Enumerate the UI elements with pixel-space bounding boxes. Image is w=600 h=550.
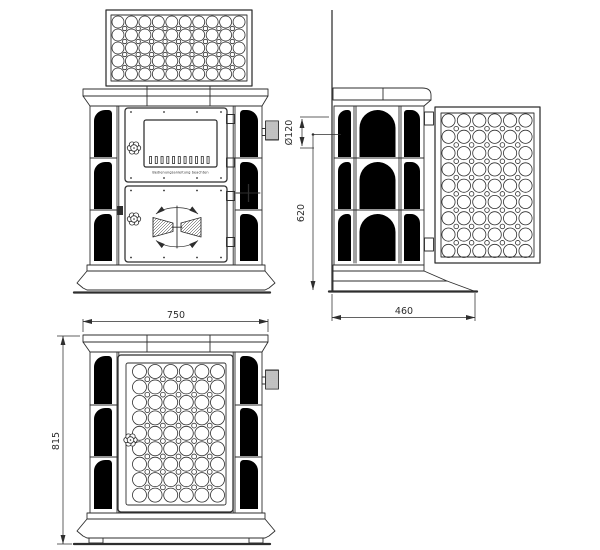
door-latch — [118, 206, 124, 215]
stove-technical-drawing-page: Bedienungsanleitung beachten — [0, 0, 600, 550]
top-cornice — [83, 86, 268, 106]
plinth-base-b — [74, 513, 275, 544]
dim-flue-diameter-label: Ø120 — [284, 120, 295, 146]
door-notice-text: Bedienungsanleitung beachten — [152, 171, 208, 175]
flue-diameter-dimension: Ø120 — [284, 117, 329, 148]
grate-hinge-top — [425, 112, 434, 125]
top-grate-panel — [106, 10, 252, 86]
side-view-tile-arches — [338, 110, 420, 261]
side-cornice — [333, 88, 431, 106]
stove-three-view-drawing: Bedienungsanleitung beachten — [0, 0, 600, 550]
front-view-dimensioned — [74, 335, 279, 544]
plinth-base — [74, 265, 275, 293]
side-view — [329, 10, 540, 292]
control-knob — [262, 121, 279, 140]
height-dimension: 815 — [51, 336, 80, 544]
grate-hinge-bottom — [425, 238, 434, 251]
bottom-cornice — [83, 335, 268, 352]
lower-door-frame — [125, 186, 227, 262]
open-grate-panel — [435, 107, 540, 263]
upper-door: Bedienungsanleitung beachten — [125, 108, 235, 182]
width-dimension: 750 — [83, 310, 268, 332]
front-grate-door — [118, 355, 233, 512]
side-plinth-base — [329, 265, 477, 292]
depth-dimension: 460 — [332, 293, 475, 321]
dim-depth-label: 460 — [395, 306, 413, 317]
control-knob-b — [262, 370, 279, 389]
front-view: Bedienungsanleitung beachten — [74, 10, 279, 293]
dim-height-label: 815 — [51, 432, 62, 450]
dim-flue-height-label: 620 — [296, 204, 307, 222]
dim-width-label: 750 — [167, 310, 185, 321]
